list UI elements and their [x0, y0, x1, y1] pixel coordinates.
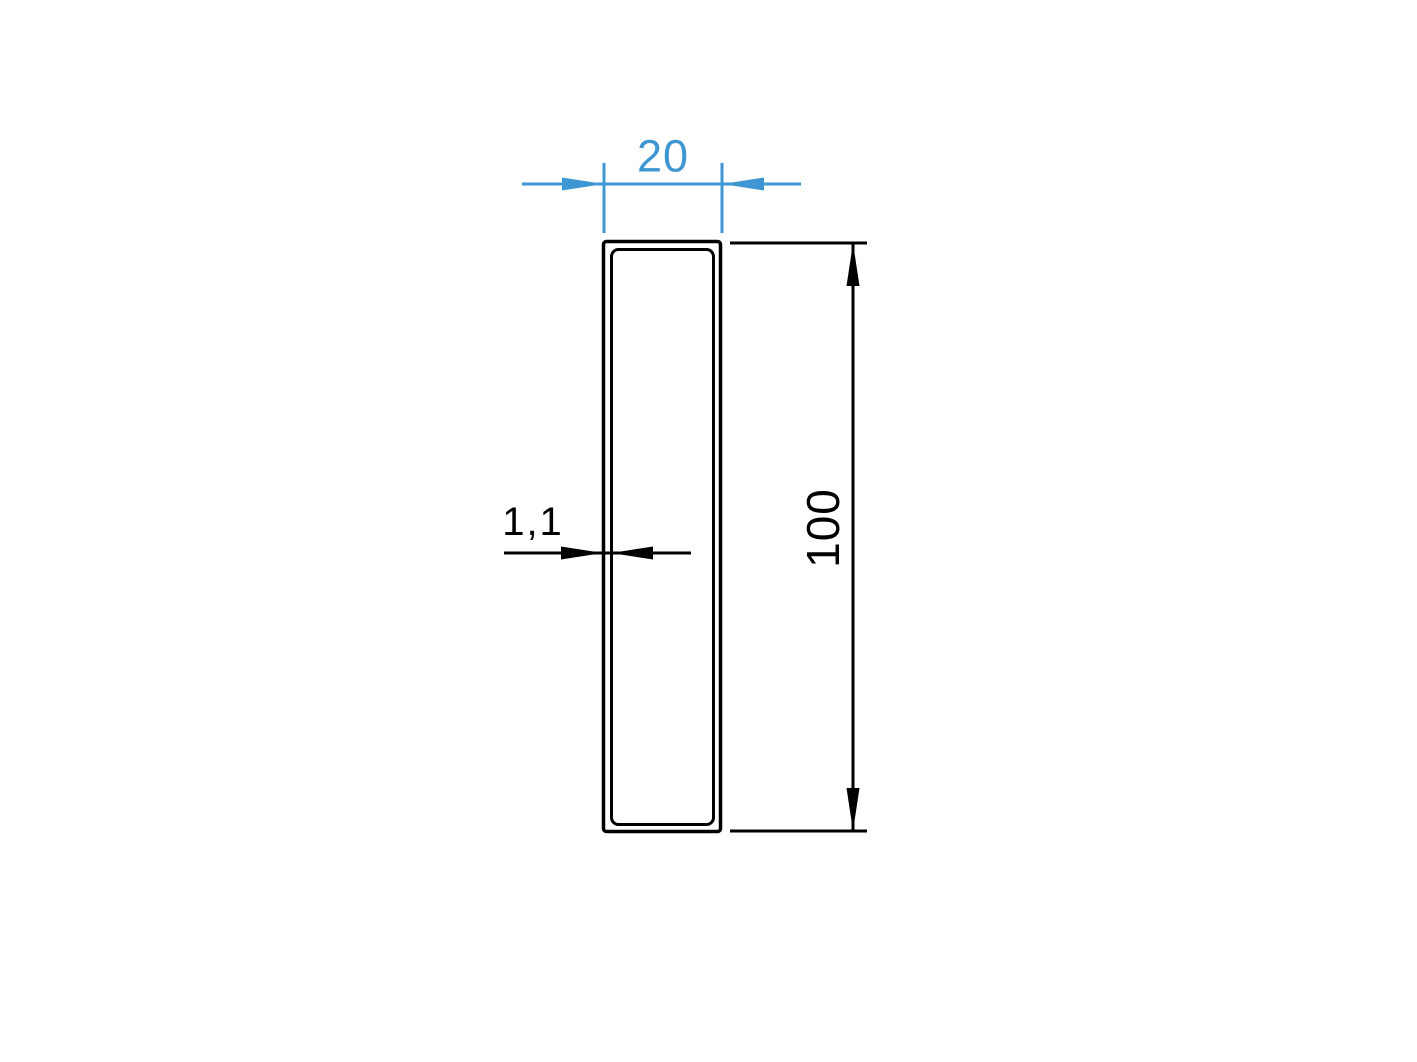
technical-drawing	[0, 0, 1417, 1062]
drawing-canvas: 20 100 1,1	[0, 0, 1417, 1062]
height-arrow-up-icon	[847, 243, 860, 286]
height-dimension-value: 100	[800, 488, 846, 568]
height-arrow-down-icon	[847, 788, 860, 831]
width-arrow-right-icon	[722, 178, 764, 191]
wall-thickness-dimension-value: 1,1	[502, 502, 564, 542]
width-arrow-left-icon	[562, 178, 604, 191]
tube-inner-contour	[612, 250, 714, 825]
width-dimension-value: 20	[637, 134, 689, 179]
wall-arrow-left-icon	[611, 547, 653, 560]
wall-arrow-right-icon	[561, 547, 603, 560]
tube-outer-contour	[604, 242, 721, 832]
